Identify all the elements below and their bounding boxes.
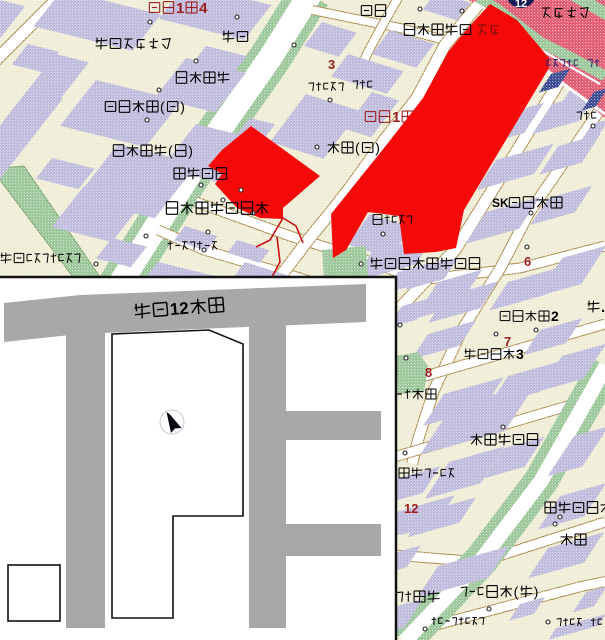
svg-text:12: 12 <box>404 501 418 516</box>
svg-text:): ) <box>534 584 539 600</box>
svg-text:SK: SK <box>492 196 509 210</box>
svg-text:3: 3 <box>328 57 335 72</box>
svg-text:12: 12 <box>515 0 527 10</box>
svg-text:): ) <box>180 99 185 115</box>
svg-text:(: ( <box>514 584 519 600</box>
svg-text:4: 4 <box>199 0 208 17</box>
svg-text:8: 8 <box>425 365 432 380</box>
svg-text:): ) <box>375 140 380 156</box>
svg-text:.: . <box>601 299 605 316</box>
svg-text:2: 2 <box>551 308 559 324</box>
svg-text:1: 1 <box>392 109 400 126</box>
svg-text:7: 7 <box>504 334 511 349</box>
svg-text:3: 3 <box>516 346 524 362</box>
svg-text:1: 1 <box>176 0 184 17</box>
svg-text:6: 6 <box>524 254 531 269</box>
svg-text:(: ( <box>168 143 173 159</box>
svg-text:(: ( <box>355 140 360 156</box>
svg-text:(: ( <box>160 99 165 115</box>
svg-text:12: 12 <box>169 299 189 319</box>
svg-text:): ) <box>188 143 193 159</box>
